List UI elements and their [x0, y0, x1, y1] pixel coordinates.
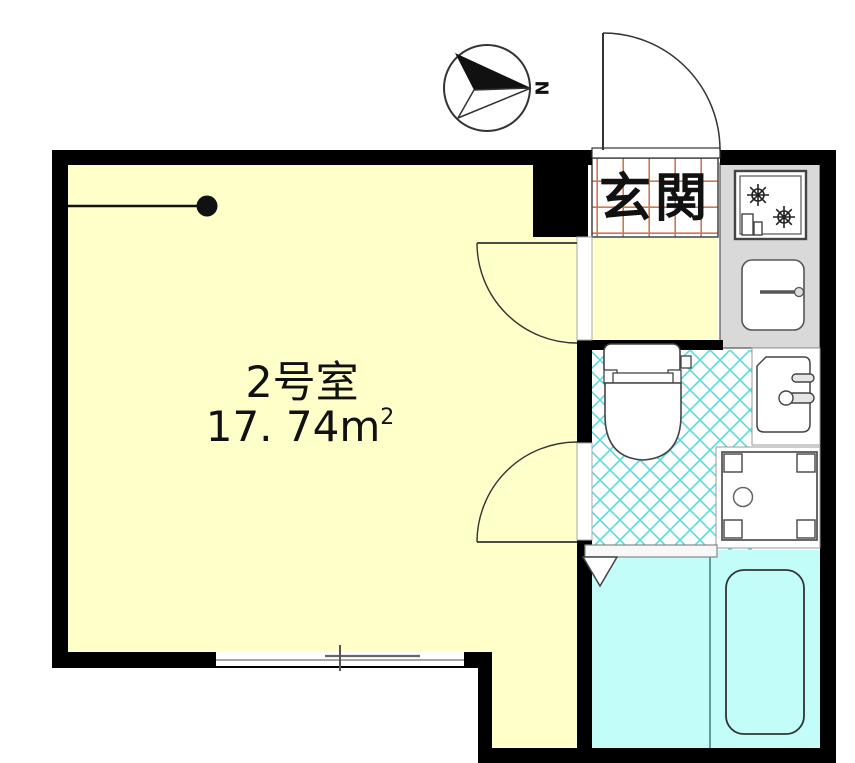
sink-basin — [742, 260, 804, 330]
entrance-floor — [592, 237, 718, 340]
compass: N — [444, 45, 552, 131]
toilet-seat-bar — [613, 373, 673, 383]
pan-corner — [724, 454, 742, 472]
wall-block-entrance — [533, 152, 588, 237]
floor-plan-drawing: N 2号室 17. 74m2 玄関 — [0, 0, 855, 763]
wall-right — [820, 150, 836, 763]
bath-threshold — [585, 545, 717, 557]
grill-tray — [742, 214, 753, 235]
faucet-handle-icon — [792, 374, 814, 382]
floor-plan: N 2号室 17. 74m2 玄関 — [0, 0, 855, 763]
entrance-label: 玄関 — [599, 169, 711, 229]
faucet-knob-icon — [779, 391, 793, 405]
front-door — [592, 33, 720, 158]
front-door-threshold — [592, 148, 720, 158]
pan-corner — [724, 520, 742, 538]
grill-knob — [754, 222, 762, 235]
kitchen-sink — [742, 260, 804, 330]
pan-corner — [797, 520, 815, 538]
north-label: N — [531, 80, 552, 95]
drain-icon — [734, 488, 753, 507]
wall-left — [52, 150, 68, 668]
room-label: 2号室 — [245, 358, 358, 408]
washbasin-area — [752, 348, 820, 445]
front-door-swing-arc — [603, 33, 720, 150]
wall-bottom-right — [478, 748, 836, 763]
main-room-floor-extension — [492, 652, 577, 748]
room-area-value: 17. 74m — [206, 402, 381, 451]
wall-connector — [478, 652, 492, 763]
door-opening-toilet — [577, 443, 592, 540]
wall-inner-mid — [577, 340, 592, 443]
bathtub — [726, 570, 804, 734]
bathroom — [592, 550, 822, 748]
room-area-superscript: 2 — [380, 405, 394, 430]
wall-top-right — [720, 150, 836, 165]
stove — [735, 171, 806, 239]
light-dot-icon — [197, 196, 218, 217]
burner-icon — [773, 206, 795, 228]
pan-corner — [797, 454, 815, 472]
toilet-button — [681, 356, 691, 368]
wall-top-left — [52, 150, 592, 165]
burner-icon — [747, 184, 769, 206]
door-opening-entrance — [577, 237, 592, 340]
washing-machine-pan — [716, 447, 820, 548]
faucet-knob-icon — [795, 288, 804, 297]
wall-inner-lower — [577, 540, 592, 763]
toilet-bowl — [605, 383, 681, 460]
room-area-label: 17. 74m2 — [206, 402, 395, 451]
